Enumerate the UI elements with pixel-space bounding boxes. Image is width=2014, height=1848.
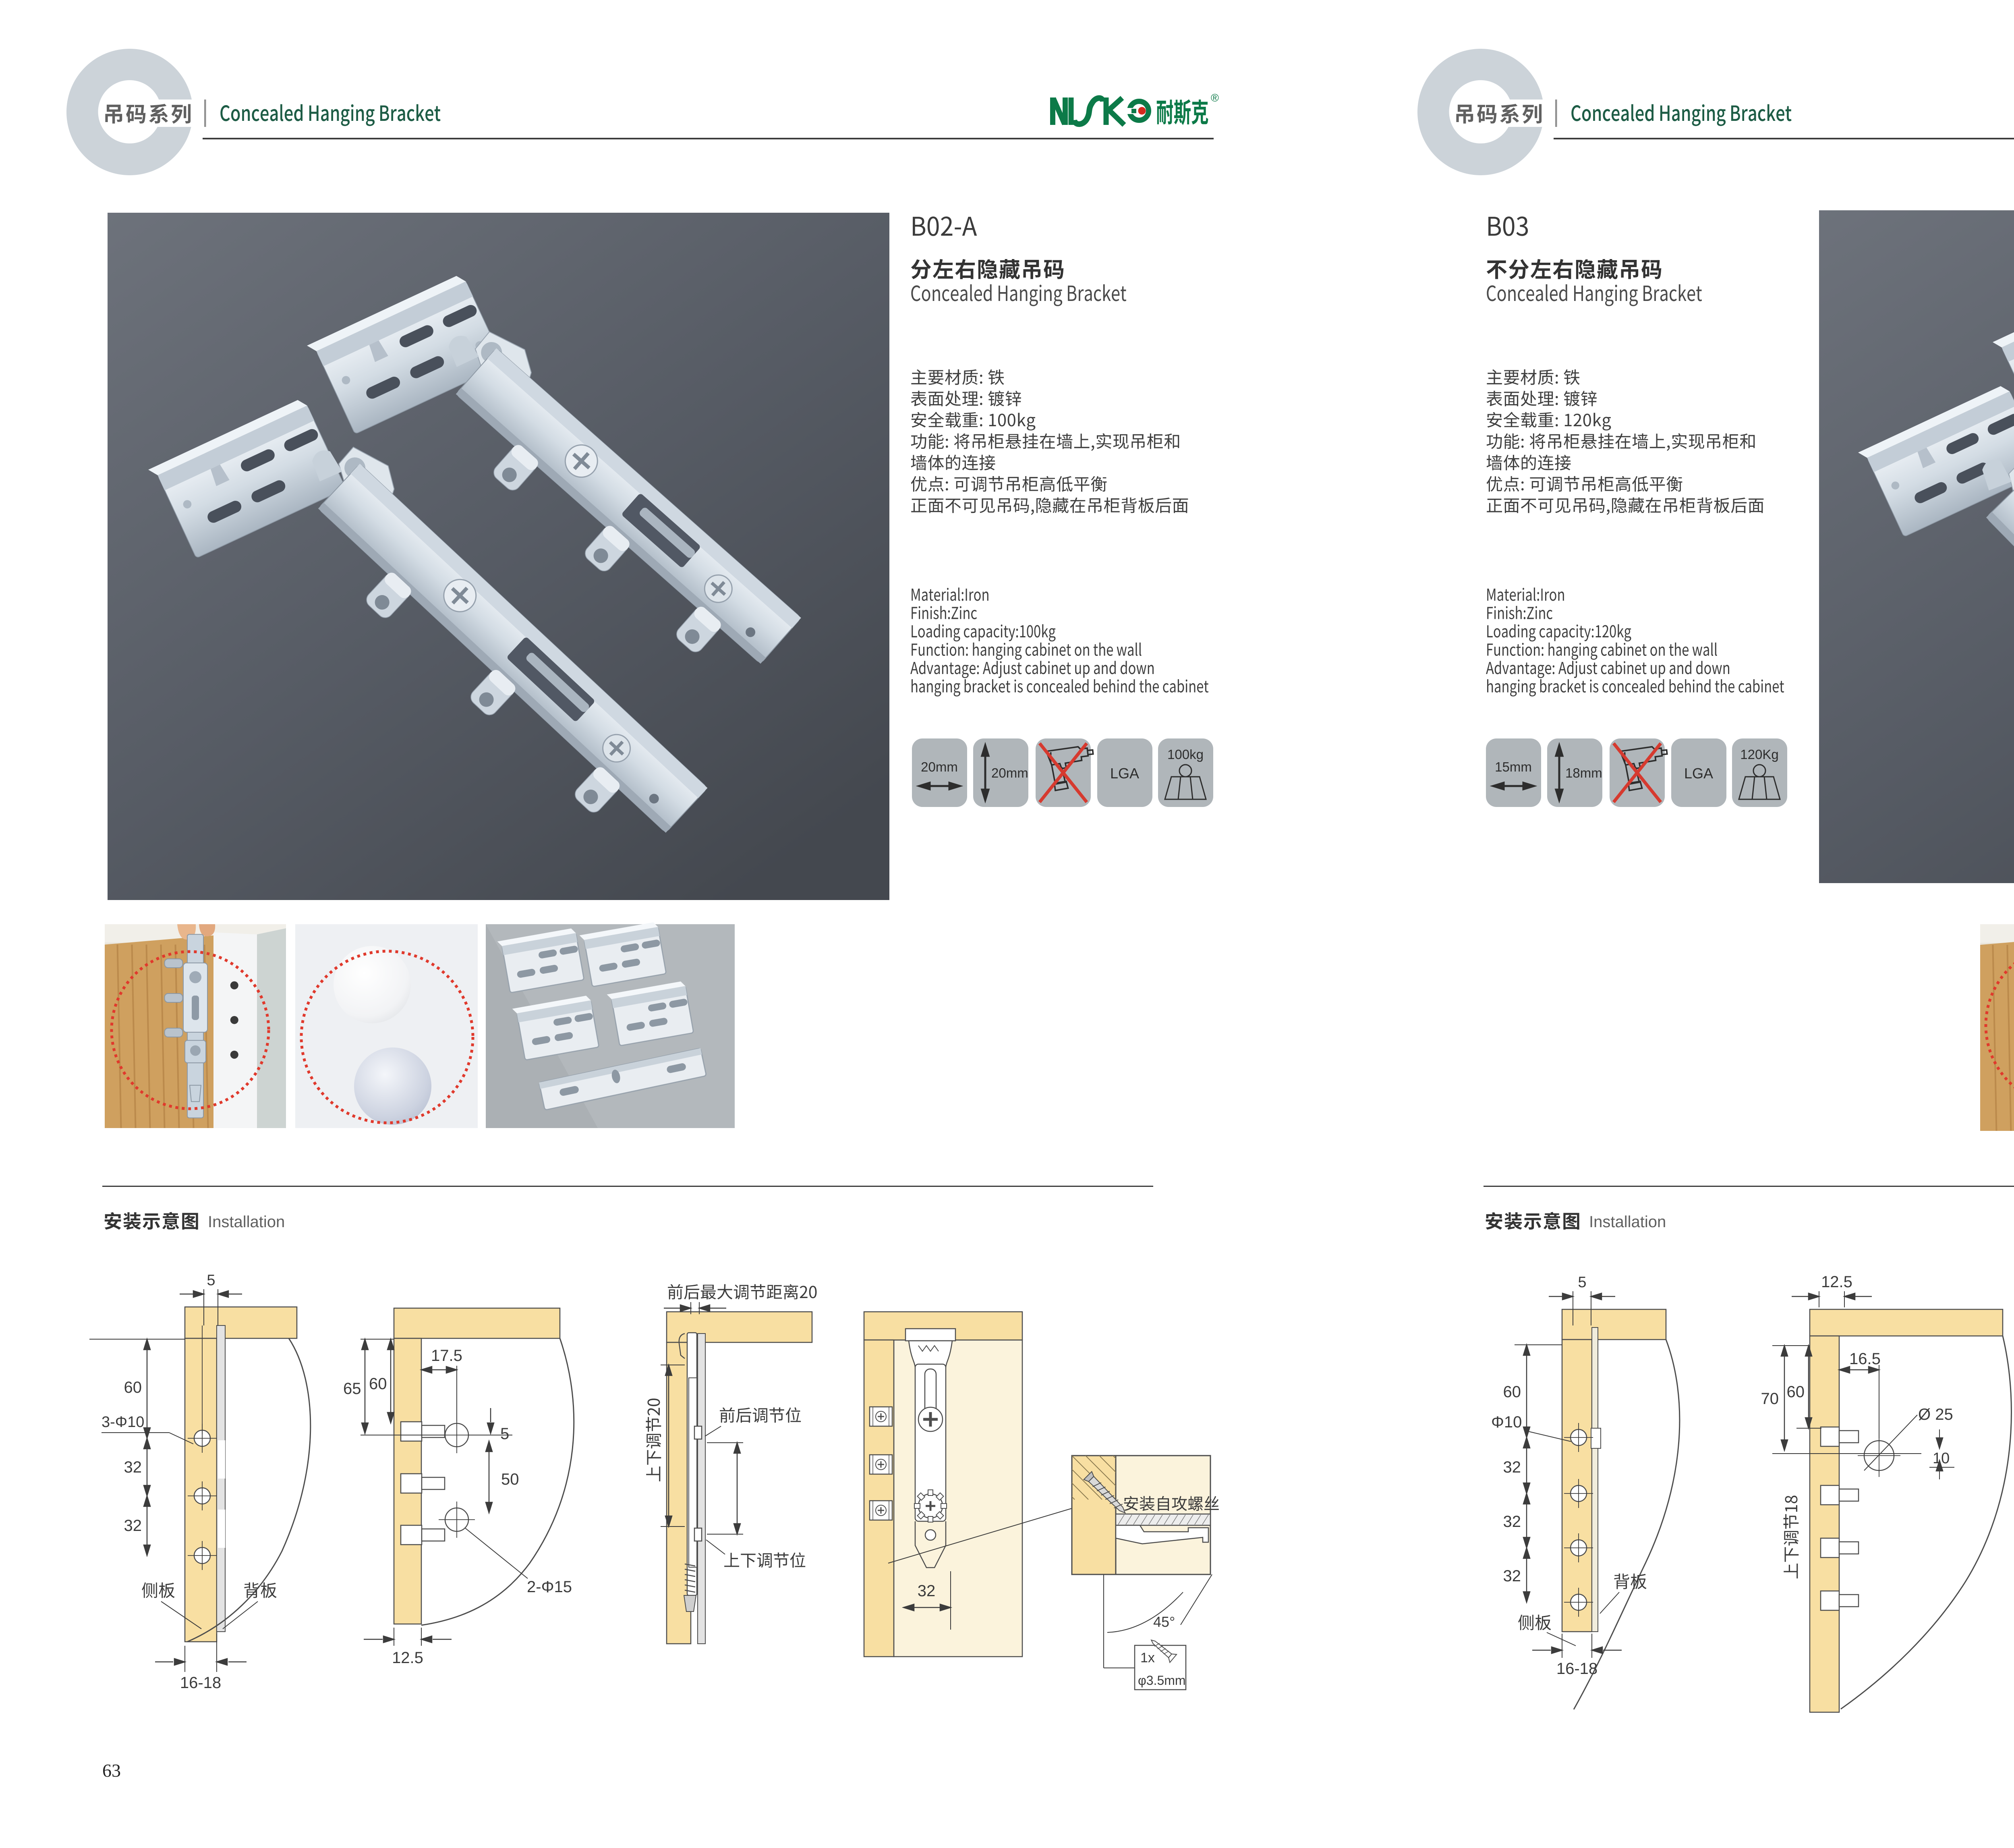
svg-text:1x: 1x <box>1140 1650 1155 1665</box>
svg-text:60: 60 <box>1787 1383 1805 1401</box>
svg-text:Installation: Installation <box>208 1213 285 1231</box>
svg-text:Installation: Installation <box>1589 1213 1666 1231</box>
svg-text:20mm: 20mm <box>991 765 1028 780</box>
svg-text:®: ® <box>1211 92 1219 104</box>
svg-text:32: 32 <box>1503 1567 1521 1585</box>
svg-text:5: 5 <box>500 1425 509 1443</box>
svg-text:18mm: 18mm <box>1565 765 1602 780</box>
svg-text:φ3.5mm: φ3.5mm <box>1138 1673 1186 1688</box>
svg-text:5: 5 <box>207 1272 215 1289</box>
svg-text:10: 10 <box>1933 1450 1950 1467</box>
svg-text:Ø 25: Ø 25 <box>1918 1406 1953 1423</box>
svg-text:65: 65 <box>343 1380 361 1398</box>
svg-text:2-Φ15: 2-Φ15 <box>527 1578 572 1596</box>
svg-text:100kg: 100kg <box>1167 747 1204 762</box>
svg-text:16-18: 16-18 <box>180 1674 221 1692</box>
svg-text:60: 60 <box>369 1375 387 1393</box>
svg-text:60: 60 <box>124 1379 142 1396</box>
svg-text:60: 60 <box>1503 1383 1521 1401</box>
svg-text:32: 32 <box>1503 1458 1521 1476</box>
svg-text:32: 32 <box>124 1458 142 1476</box>
svg-text:50: 50 <box>501 1471 519 1488</box>
svg-text:120Kg: 120Kg <box>1740 747 1778 762</box>
svg-text:70: 70 <box>1761 1390 1779 1408</box>
svg-text:15mm: 15mm <box>1495 759 1532 774</box>
svg-text:LGA: LGA <box>1110 765 1139 782</box>
svg-text:LGA: LGA <box>1684 765 1713 782</box>
svg-text:16-18: 16-18 <box>1556 1660 1598 1678</box>
svg-text:17.5: 17.5 <box>431 1347 462 1365</box>
svg-text:12.5: 12.5 <box>1821 1273 1852 1291</box>
svg-text:12.5: 12.5 <box>392 1649 423 1667</box>
svg-text:20mm: 20mm <box>921 759 958 774</box>
svg-text:Φ10: Φ10 <box>1491 1413 1522 1431</box>
svg-text:3-Φ10: 3-Φ10 <box>102 1414 144 1431</box>
svg-text:32: 32 <box>918 1582 936 1600</box>
svg-text:32: 32 <box>1503 1513 1521 1531</box>
svg-text:16.5: 16.5 <box>1849 1350 1881 1368</box>
svg-text:45°: 45° <box>1153 1614 1175 1630</box>
svg-text:32: 32 <box>124 1517 142 1535</box>
svg-text:5: 5 <box>1578 1274 1586 1291</box>
svg-text:63: 63 <box>102 1760 121 1781</box>
